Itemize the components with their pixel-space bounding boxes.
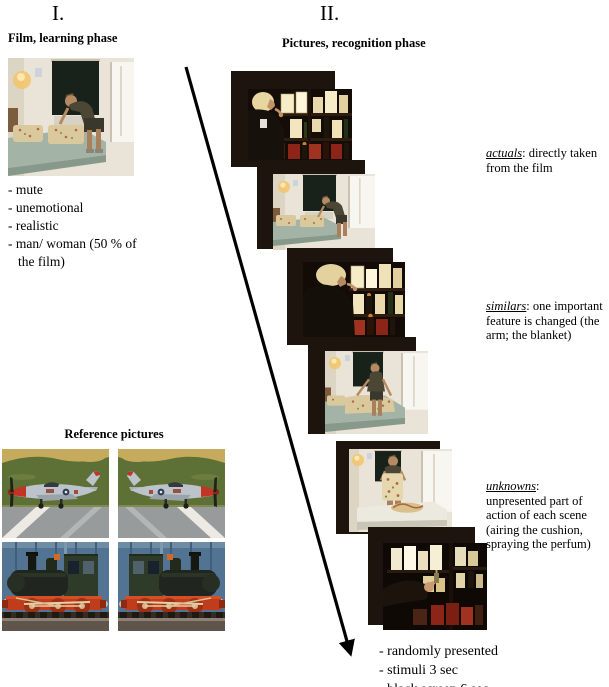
perfume-spray-illustration bbox=[383, 543, 487, 630]
annotation-term: actuals bbox=[486, 146, 522, 160]
perfume-closeup-illustration bbox=[248, 89, 352, 161]
stimulus-photo-actual-bedroom bbox=[273, 174, 375, 250]
annotation-term: similars bbox=[486, 299, 526, 313]
film-property: - man/ woman (50 % of the film) bbox=[8, 235, 148, 271]
film-phase-title: Film, learning phase bbox=[8, 31, 117, 46]
bedroom-similar-illustration bbox=[325, 351, 428, 434]
cushion-airing-illustration bbox=[349, 449, 452, 532]
stimulus-photo-similar-bedroom bbox=[325, 351, 428, 434]
film-properties-list: - mute - unemotional - realistic - man/ … bbox=[8, 181, 148, 271]
film-photo bbox=[8, 58, 134, 176]
stimulus-photo-similar-perfume bbox=[303, 262, 405, 337]
stimulus-photo-unknown-cushion bbox=[349, 449, 452, 532]
presentation-note: - stimuli 3 sec bbox=[379, 661, 549, 680]
reference-pictures-title: Reference pictures bbox=[0, 427, 228, 442]
recognition-phase-title: Pictures, recognition phase bbox=[282, 36, 426, 51]
reference-photo-train-right bbox=[118, 542, 225, 631]
presentation-note: - randomly presented bbox=[379, 642, 549, 661]
annotation-similars: similars: one important feature is chang… bbox=[486, 299, 605, 343]
stimulus-photo-actual-perfume bbox=[248, 89, 352, 161]
stimulus-photo-unknown-spray bbox=[383, 543, 487, 630]
perfume-similar-illustration bbox=[303, 262, 405, 337]
film-property: - realistic bbox=[8, 217, 148, 235]
section-ii-label: II. bbox=[320, 2, 339, 24]
annotation-actuals: actuals: directly taken from the film bbox=[486, 146, 608, 175]
reference-photo-airplane-left bbox=[2, 449, 109, 538]
annotation-term: unknowns bbox=[486, 479, 536, 493]
film-property: - unemotional bbox=[8, 199, 148, 217]
bedroom-film-illustration bbox=[8, 58, 134, 176]
film-property: - mute bbox=[8, 181, 148, 199]
locomotive-illustration bbox=[2, 542, 109, 631]
locomotive-illustration-mirrored bbox=[118, 542, 225, 631]
presentation-notes-list: - randomly presented - stimuli 3 sec - b… bbox=[379, 642, 549, 687]
airplane-illustration bbox=[2, 449, 109, 538]
annotation-unknowns: unknowns: unpresented part of action of … bbox=[486, 479, 600, 552]
section-i-label: I. bbox=[52, 2, 64, 24]
bedroom-actual-illustration bbox=[273, 174, 375, 250]
airplane-illustration-mirrored bbox=[118, 449, 225, 538]
presentation-note: - black screen 6 sec bbox=[379, 680, 549, 687]
reference-photo-train-left bbox=[2, 542, 109, 631]
figure-canvas: I. Film, learning phase bbox=[0, 0, 609, 687]
reference-photo-airplane-right bbox=[118, 449, 225, 538]
